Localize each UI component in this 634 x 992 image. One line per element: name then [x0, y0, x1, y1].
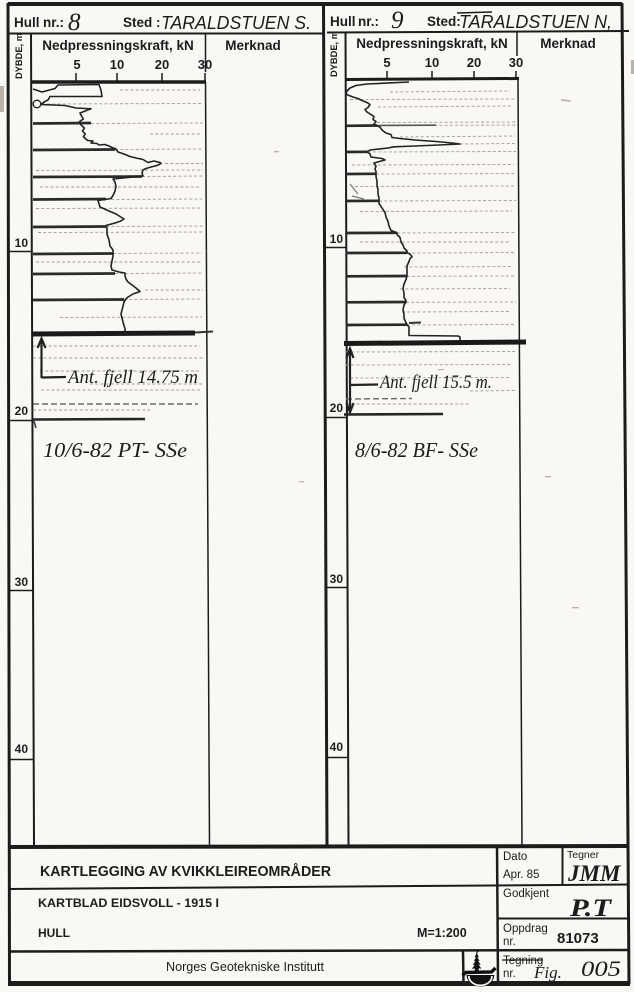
svg-text:Apr. 85: Apr. 85 — [503, 869, 539, 881]
svg-text:Ant. fjell 14.75 m: Ant. fjell 14.75 m — [66, 367, 198, 388]
svg-text:DYBDE, m: DYBDE, m — [14, 33, 24, 79]
svg-text:20: 20 — [330, 401, 344, 415]
svg-text:nr.:: nr.: — [43, 15, 64, 30]
svg-text:10: 10 — [15, 236, 29, 250]
svg-text:Oppdrag: Oppdrag — [503, 923, 548, 935]
svg-text:TARALDSTUEN S.: TARALDSTUEN S. — [161, 13, 311, 33]
svg-text:10: 10 — [330, 232, 344, 246]
svg-text:Norges Geotekniske Institutt: Norges Geotekniske Institutt — [166, 959, 324, 974]
svg-text:Sted :: Sted : — [123, 15, 161, 30]
svg-text:5: 5 — [73, 57, 80, 72]
svg-text:30: 30 — [15, 575, 29, 589]
svg-text:10/6-82 PT- SSe: 10/6-82 PT- SSe — [43, 438, 187, 462]
svg-text:10: 10 — [110, 57, 124, 72]
svg-text:Tegner: Tegner — [567, 849, 600, 861]
svg-text:20: 20 — [15, 404, 29, 418]
svg-text:TARALDSTUEN N,: TARALDSTUEN N, — [459, 12, 612, 32]
svg-text:20: 20 — [467, 55, 481, 70]
svg-text:8/6-82 BF- SSe: 8/6-82 BF- SSe — [355, 438, 478, 462]
svg-text:Hull: Hull — [14, 15, 40, 30]
svg-text:005: 005 — [581, 956, 621, 981]
svg-text:Nedpressningskraft, kN: Nedpressningskraft, kN — [356, 36, 508, 51]
svg-text:Dato: Dato — [503, 851, 527, 863]
svg-text:nr.: nr. — [503, 936, 516, 948]
svg-text:DYBDE, m: DYBDE, m — [329, 31, 339, 77]
svg-text:Ant. fjell 15.5 m.: Ant. fjell 15.5 m. — [378, 372, 492, 393]
svg-text:5: 5 — [383, 55, 390, 70]
svg-text:nr.:: nr.: — [358, 14, 379, 29]
svg-text:9: 9 — [391, 7, 404, 34]
svg-text:20: 20 — [155, 57, 169, 72]
svg-text:40: 40 — [15, 742, 29, 756]
svg-text:Godkjent: Godkjent — [503, 888, 550, 900]
svg-text:30: 30 — [330, 572, 344, 586]
svg-text:Fig.: Fig. — [533, 963, 562, 982]
svg-text:Nedpressningskraft, kN: Nedpressningskraft, kN — [42, 38, 194, 53]
svg-text:KARTLEGGING AV KVIKKLEIREOMR: KARTLEGGING AV KVIKKLEIREOMRÅDER — [40, 863, 332, 880]
svg-text:8: 8 — [68, 9, 81, 36]
svg-text:M=1:200: M=1:200 — [417, 926, 467, 940]
svg-text:Hull: Hull — [330, 14, 356, 29]
svg-text:KARTBLAD EIDSVOLL - 1915 I: KARTBLAD EIDSVOLL - 1915 I — [38, 896, 219, 910]
svg-text:10: 10 — [425, 55, 439, 70]
svg-text:40: 40 — [330, 740, 344, 754]
svg-text:Merknad: Merknad — [225, 38, 281, 53]
svg-text:81073: 81073 — [557, 930, 599, 947]
svg-text:HULL: HULL — [38, 926, 70, 940]
svg-text:Merknad: Merknad — [540, 36, 596, 51]
svg-text:P.T: P.T — [569, 895, 613, 922]
svg-text:nr.: nr. — [503, 968, 516, 980]
svg-text:30: 30 — [509, 55, 523, 70]
svg-text:Sted:: Sted: — [427, 14, 461, 29]
svg-text:JMM: JMM — [567, 861, 622, 886]
